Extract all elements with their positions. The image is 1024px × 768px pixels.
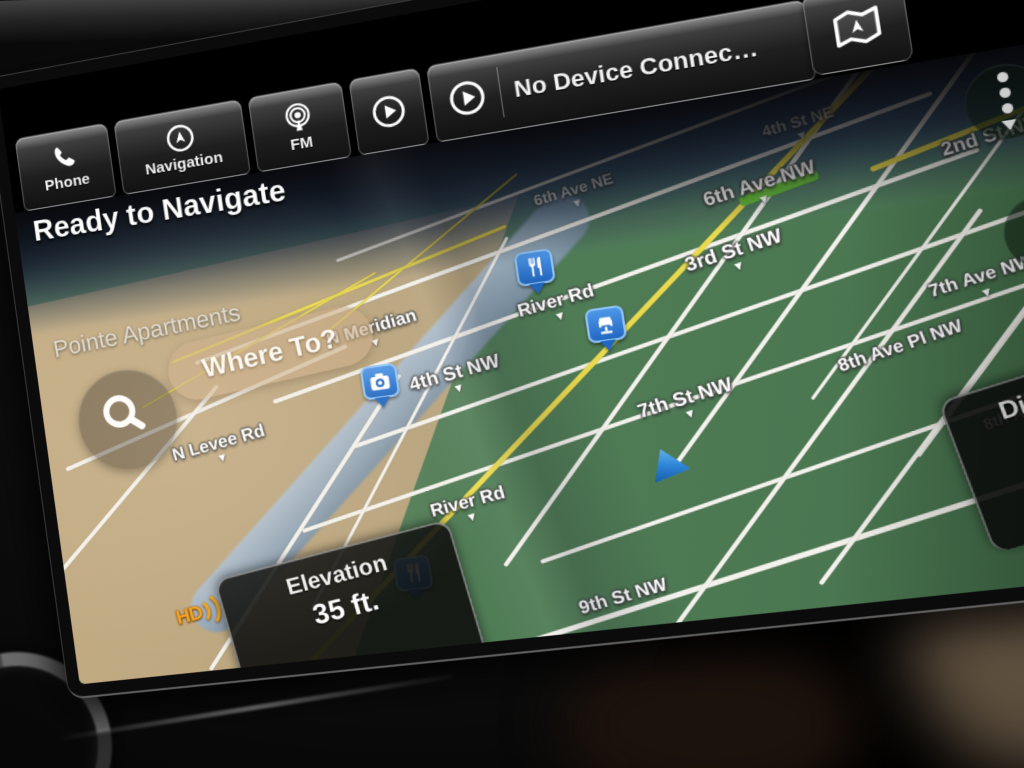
play-circle-icon [445, 76, 490, 120]
folded-map-icon [828, 1, 887, 54]
dot [1001, 103, 1014, 115]
play-circle-icon [368, 91, 409, 132]
zoom-in-button[interactable]: + [999, 188, 1024, 274]
photo-stage: 10:47 Phone [0, 0, 1024, 768]
audio-status-text: No Device Connec… [512, 34, 760, 104]
dot [998, 87, 1011, 99]
tab-fm-label: FM [289, 133, 314, 154]
phone-icon [48, 141, 79, 173]
dotted-route-icon [994, 71, 1018, 131]
head-unit-bezel: 10:47 Phone [0, 0, 1024, 700]
nav-compass-icon [163, 120, 198, 155]
fm-broadcast-icon [280, 99, 316, 135]
caret [1001, 119, 1017, 131]
infotainment-screen: 10:47 Phone [0, 0, 1024, 684]
tab-media-projection[interactable] [348, 67, 429, 156]
dot [996, 72, 1009, 84]
route-overview-button[interactable] [960, 58, 1024, 145]
divider [496, 67, 504, 117]
tab-navigation-label: Navigation [144, 148, 224, 178]
tab-phone-label: Phone [44, 170, 91, 194]
